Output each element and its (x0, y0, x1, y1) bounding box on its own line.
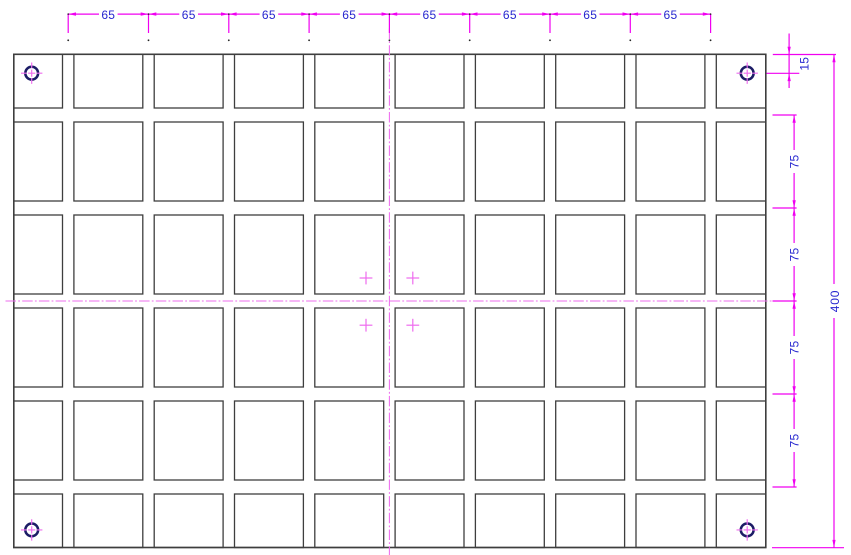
svg-text:65: 65 (423, 8, 437, 22)
svg-text:75: 75 (788, 248, 802, 262)
svg-text:65: 65 (182, 8, 196, 22)
svg-text:15: 15 (798, 57, 812, 71)
svg-text:65: 65 (583, 8, 597, 22)
svg-text:400: 400 (828, 290, 842, 312)
svg-text:65: 65 (503, 8, 517, 22)
svg-text:65: 65 (342, 8, 356, 22)
svg-text:75: 75 (788, 155, 802, 169)
svg-text:65: 65 (101, 8, 115, 22)
svg-text:75: 75 (788, 341, 802, 355)
svg-text:65: 65 (262, 8, 276, 22)
svg-text:75: 75 (788, 434, 802, 448)
svg-text:65: 65 (664, 8, 678, 22)
